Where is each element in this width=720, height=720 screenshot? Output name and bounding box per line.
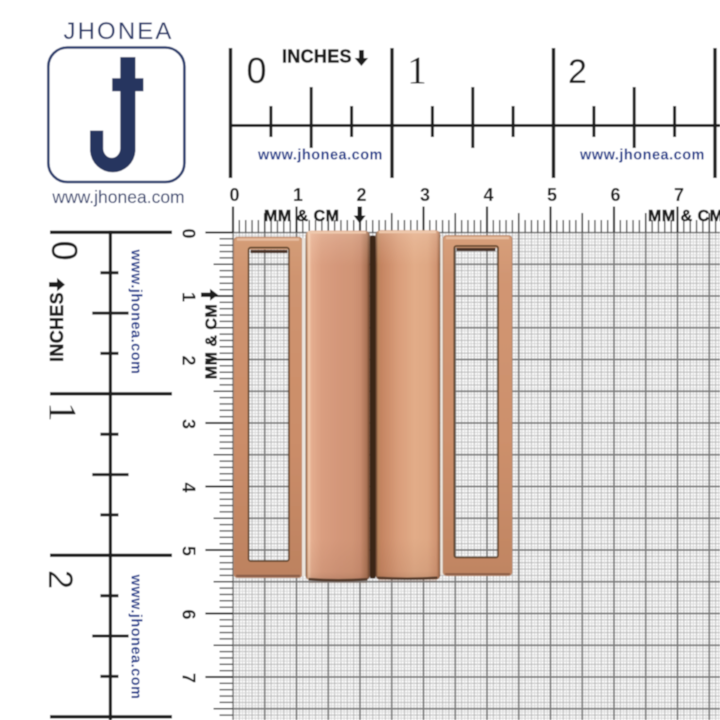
svg-text:2: 2 [356,185,366,205]
svg-text:0: 0 [246,50,266,91]
svg-text:MM & CM: MM & CM [264,208,339,225]
svg-text:5: 5 [547,185,557,205]
svg-text:www.jhonea.com: www.jhonea.com [579,148,705,164]
svg-text:JHONEA: JHONEA [64,18,174,45]
svg-text:0: 0 [44,241,85,261]
svg-text:www.jhonea.com: www.jhonea.com [128,249,144,375]
svg-text:3: 3 [420,185,430,205]
svg-text:INCHES: INCHES [47,292,67,362]
svg-text:www.jhonea.com: www.jhonea.com [128,574,144,700]
svg-text:4: 4 [483,185,493,205]
svg-text:6: 6 [610,185,620,205]
svg-text:0: 0 [179,228,199,238]
svg-text:1: 1 [41,402,84,422]
svg-text:6: 6 [179,609,199,619]
svg-text:4: 4 [179,482,199,492]
svg-text:MM & CM: MM & CM [204,304,221,379]
svg-text:2: 2 [568,53,587,91]
svg-text:2: 2 [179,355,199,365]
svg-text:1: 1 [293,185,303,205]
svg-text:MM & CM: MM & CM [648,208,720,225]
svg-text:2: 2 [41,570,79,589]
svg-text:www.jhonea.com: www.jhonea.com [51,187,184,207]
svg-text:5: 5 [179,546,199,556]
svg-text:INCHES: INCHES [282,47,352,67]
svg-text:www.jhonea.com: www.jhonea.com [257,148,383,164]
svg-text:0: 0 [229,185,239,205]
svg-text:1: 1 [179,292,199,302]
svg-text:7: 7 [179,673,199,683]
svg-text:3: 3 [179,419,199,429]
svg-text:1: 1 [407,49,427,92]
svg-text:7: 7 [674,185,684,205]
